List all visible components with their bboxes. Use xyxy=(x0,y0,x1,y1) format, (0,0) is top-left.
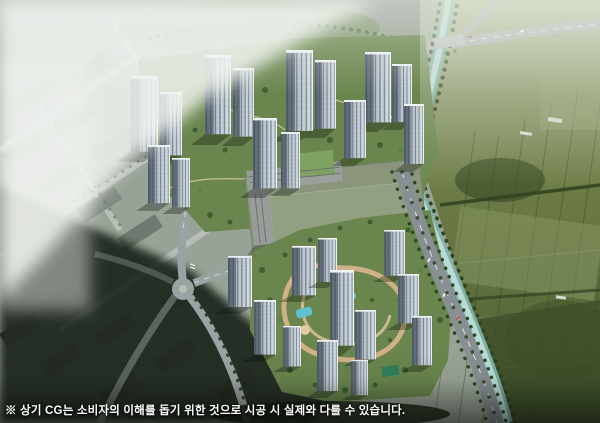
disclaimer-caption: ※ 상기 CG는 소비자의 이해를 돕기 위한 것으로 시공 시 실제와 다를 … xyxy=(5,402,595,418)
aerial-cg-rendering: ※ 상기 CG는 소비자의 이해를 돕기 위한 것으로 시공 시 실제와 다를 … xyxy=(0,0,600,423)
aerial-view-svg xyxy=(0,0,600,423)
